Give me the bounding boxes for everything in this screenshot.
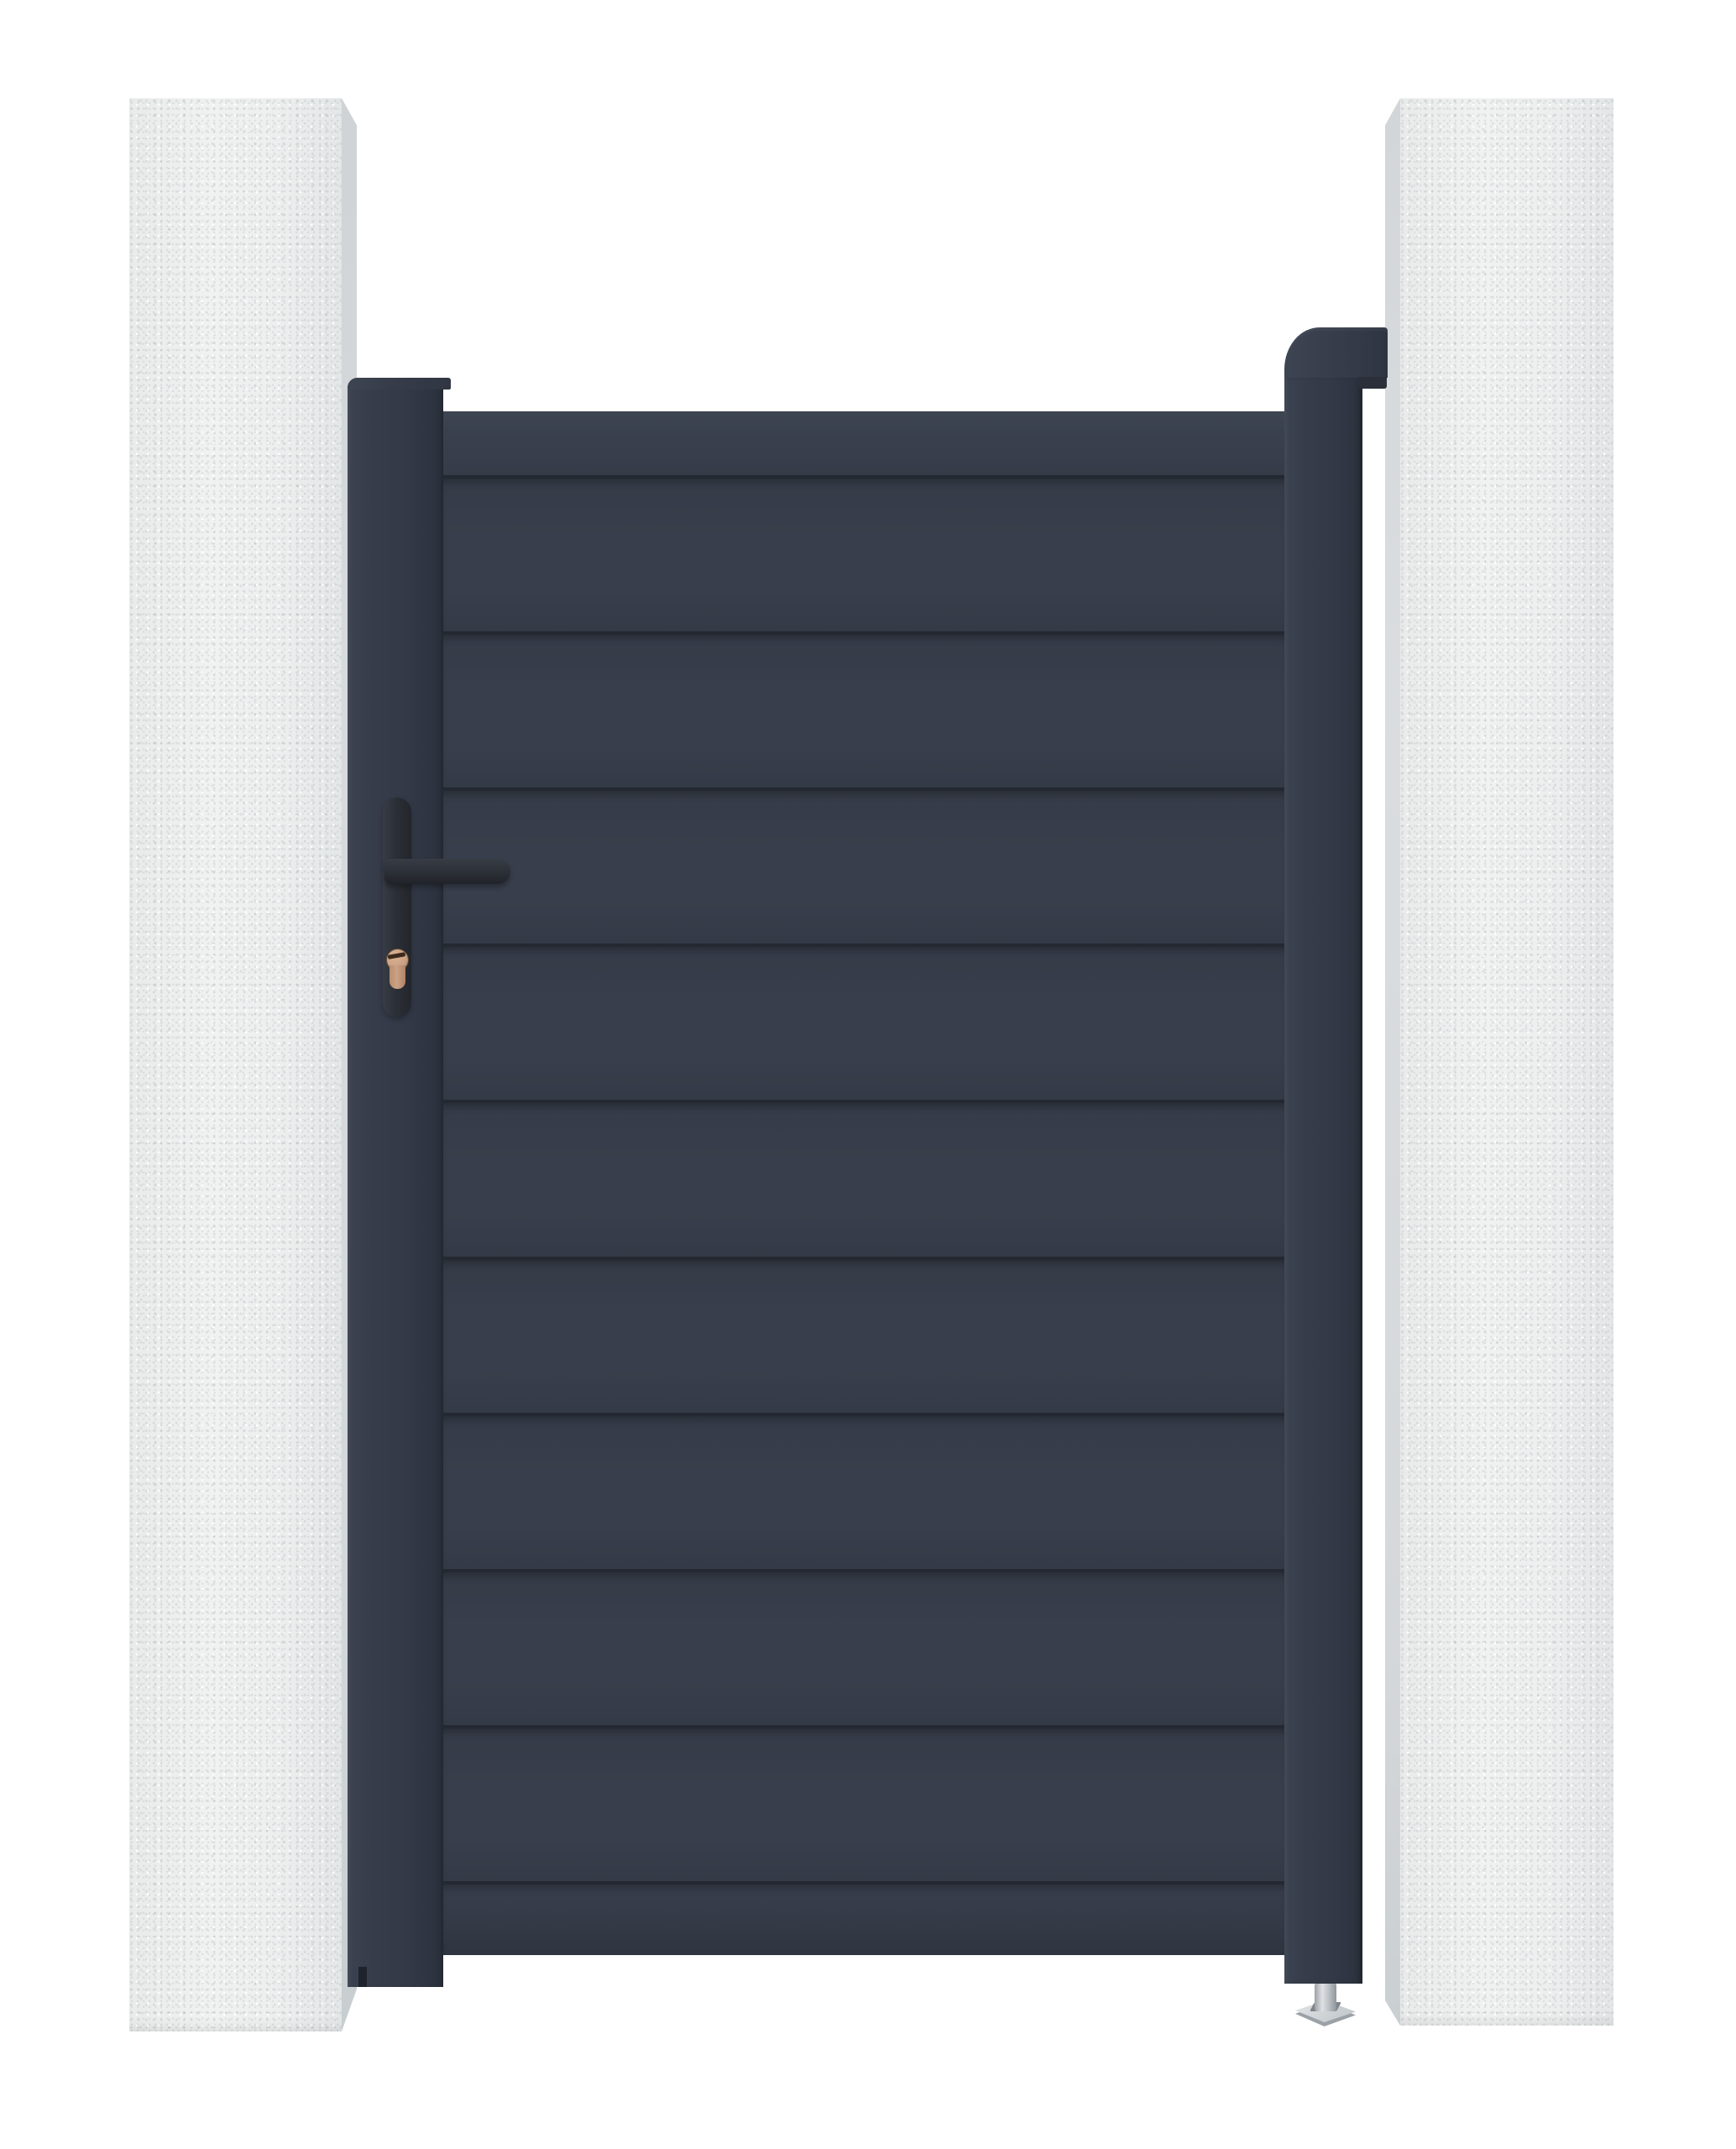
gate-slat xyxy=(443,1257,1284,1413)
right-pillar-side-face xyxy=(1385,98,1400,2026)
lock-cylinder-stem xyxy=(390,965,405,989)
left-pillar xyxy=(129,98,342,2031)
gate-slat xyxy=(443,787,1284,944)
left-frame-post-notch xyxy=(358,1967,367,1987)
gate-slat xyxy=(443,475,1284,631)
lever-handle xyxy=(384,859,510,884)
gate-slat xyxy=(443,1569,1284,1725)
gate-leaf xyxy=(443,411,1284,1952)
left-frame-post-cap xyxy=(348,378,451,390)
gate-slat-infill xyxy=(443,475,1284,1881)
right-pillar xyxy=(1400,98,1613,2026)
gate-slat xyxy=(443,1413,1284,1569)
gate-slat xyxy=(443,944,1284,1100)
hinge-post xyxy=(1284,377,1362,1984)
left-frame-post xyxy=(348,378,443,1987)
gate-slat xyxy=(443,1100,1284,1256)
gate-product-render xyxy=(0,0,1736,2149)
hinge-post-cap xyxy=(1284,327,1388,378)
adjustable-foot-spindle xyxy=(1315,1984,1336,2011)
gate-top-rail xyxy=(443,411,1284,475)
gate-slat xyxy=(443,631,1284,787)
hinge-post-cap-step xyxy=(1358,377,1387,389)
gate-bottom-rail xyxy=(443,1881,1284,1955)
gate-slat xyxy=(443,1725,1284,1881)
